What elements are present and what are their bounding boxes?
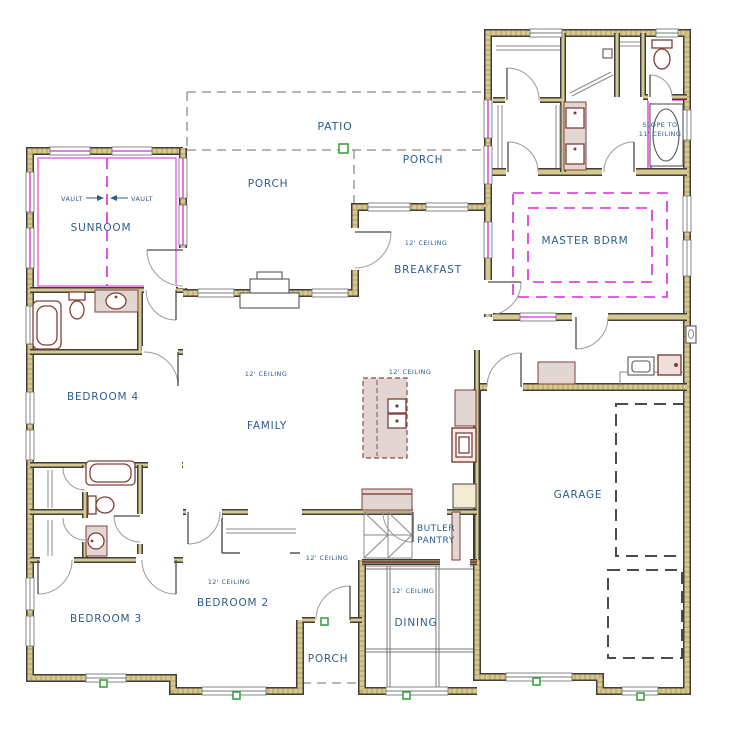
garage-storage-outline <box>608 404 684 658</box>
laundry-fixtures <box>538 355 684 387</box>
note-bedroom2-ceiling: 12' CEILING <box>208 578 251 586</box>
floor-plan-canvas: PATIO PORCH PORCH SUNROOM VAULT VAULT 12… <box>0 0 732 738</box>
note-family-ceiling: 12' CEILING <box>245 370 288 378</box>
jack-jill-bath-fixtures <box>86 461 135 556</box>
exterior-walls <box>30 33 687 691</box>
label-breakfast: BREAKFAST <box>394 264 462 276</box>
note-slope-line1: SLOPE TO <box>642 121 677 129</box>
label-dining: DINING <box>395 617 438 629</box>
label-patio: PATIO <box>317 120 352 133</box>
master-bath-fixtures <box>564 40 683 170</box>
hall-bath-fixtures <box>33 290 138 349</box>
note-dining-ceiling: 12' CEILING <box>392 587 435 595</box>
note-slope-line2: 11' CEILING <box>639 130 682 138</box>
label-porch-rear-left: PORCH <box>248 178 289 190</box>
interior-walls <box>30 33 687 620</box>
label-garage: GARAGE <box>554 489 603 501</box>
label-bedroom2: BEDROOM 2 <box>197 597 269 609</box>
note-kitchen-ceiling: 12' CEILING <box>389 368 432 376</box>
butler-pantry-shelves <box>364 512 412 558</box>
kitchen-island <box>363 378 407 458</box>
label-sunroom: SUNROOM <box>71 222 132 234</box>
label-butler-line2: PANTRY <box>417 536 454 546</box>
label-master-bdrm: MASTER BDRM <box>541 235 628 247</box>
label-bedroom4: BEDROOM 4 <box>67 391 139 403</box>
patio-outline <box>187 92 488 683</box>
label-porch-front: PORCH <box>308 653 349 665</box>
label-vault-right: VAULT <box>131 195 153 203</box>
floor-plan-drawing: PATIO PORCH PORCH SUNROOM VAULT VAULT 12… <box>0 0 732 738</box>
label-family: FAMILY <box>247 420 287 432</box>
label-bedroom3: BEDROOM 3 <box>70 613 142 625</box>
note-hall-ceiling: 12' CEILING <box>306 554 349 562</box>
electrical-panel-marker <box>686 326 696 343</box>
label-butler-line1: BUTLER <box>417 524 455 534</box>
label-porch-rear-right: PORCH <box>403 154 444 166</box>
label-vault-left: VAULT <box>61 195 83 203</box>
note-breakfast-ceiling: 12' CEILING <box>405 239 448 247</box>
